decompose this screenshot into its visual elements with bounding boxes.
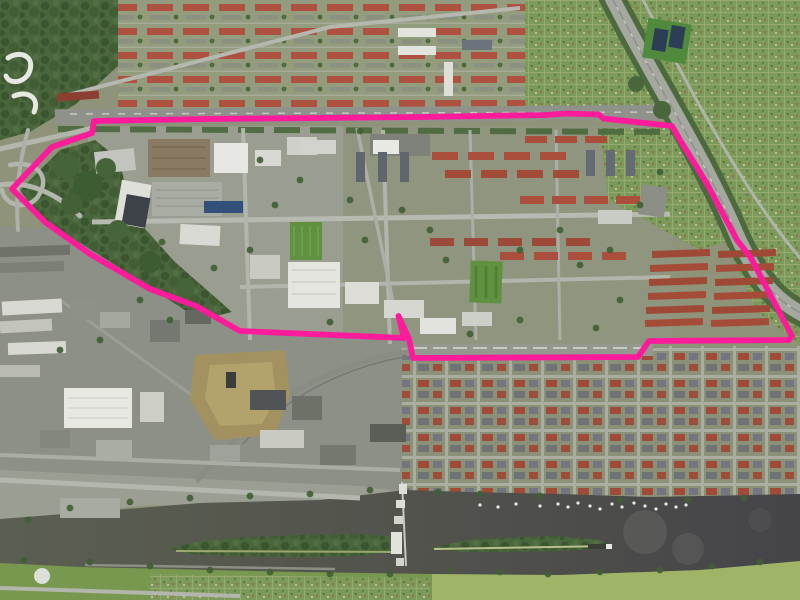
aerial-photo: [0, 0, 800, 600]
aerial-map-screenshot: [0, 0, 800, 600]
